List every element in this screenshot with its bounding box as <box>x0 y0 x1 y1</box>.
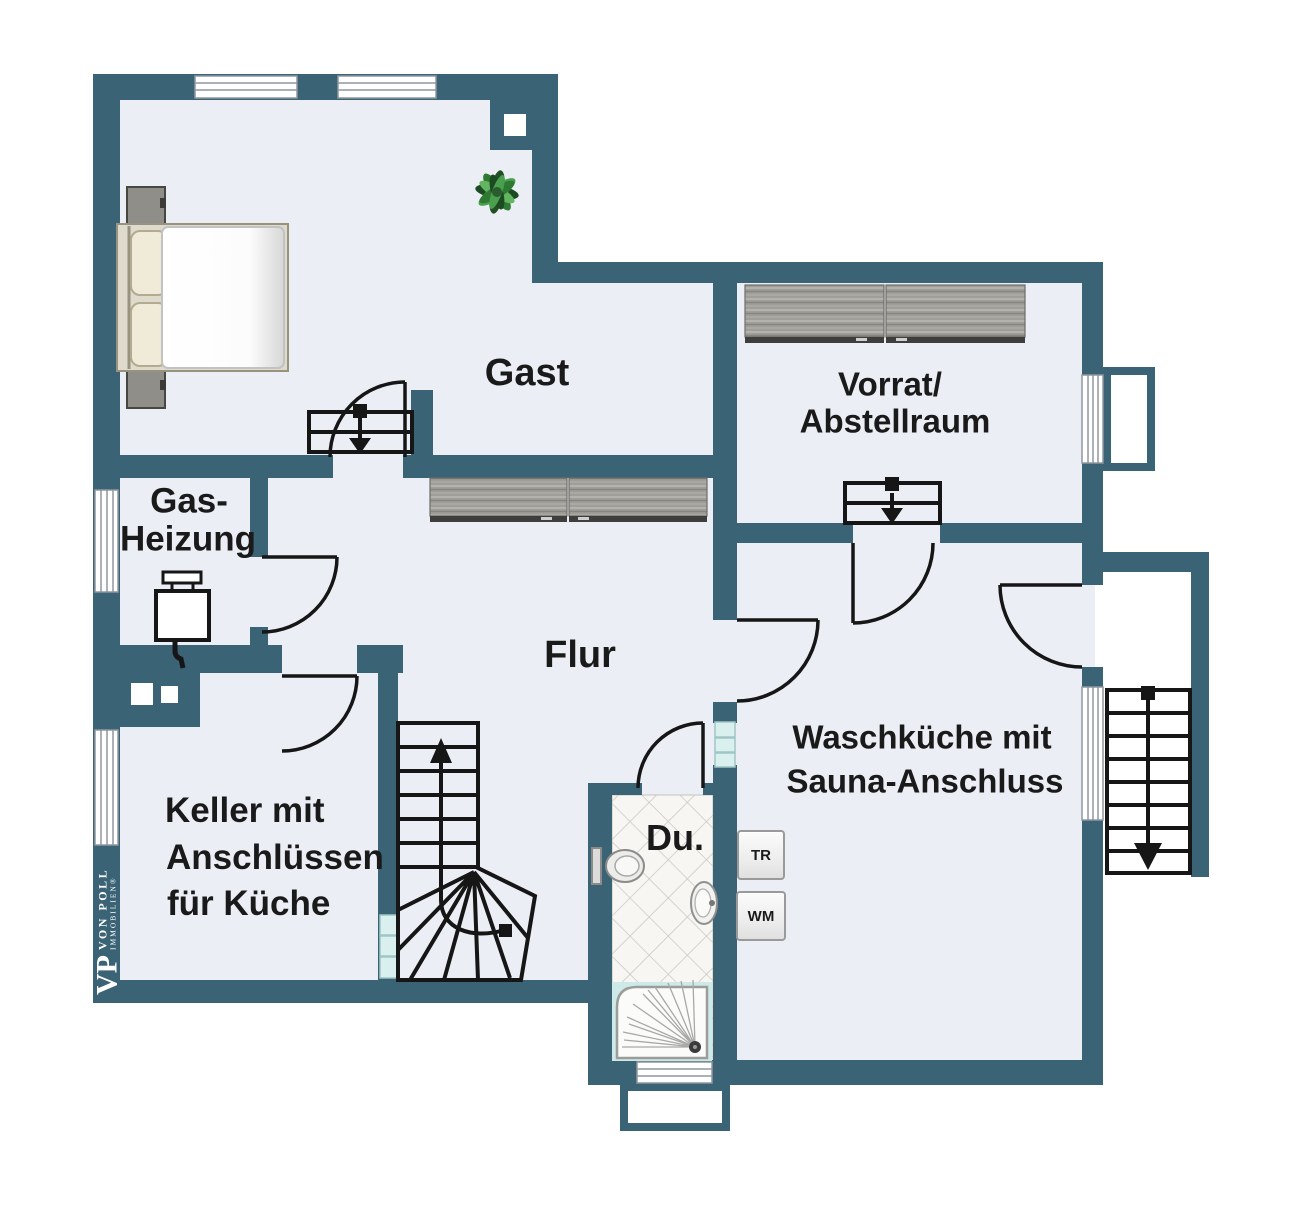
toilet-icon <box>592 848 644 884</box>
wall <box>1082 283 1103 375</box>
room-label-flur: Flur <box>544 636 616 674</box>
wall <box>403 455 713 478</box>
room-label-gast: Gast <box>485 354 569 392</box>
wall-notch <box>504 114 526 136</box>
room-label-vorrat-line2: Abstellraum <box>800 405 991 438</box>
brand-monogram: VP <box>92 955 122 995</box>
window-top-1 <box>195 76 297 98</box>
wall-ext-stair <box>1191 552 1209 877</box>
room-label-wasch-line2: Sauna-Anschluss <box>787 765 1064 798</box>
room-label-gas-line1: Gas- <box>150 484 228 519</box>
glass-block <box>715 722 735 737</box>
wall <box>713 765 737 1085</box>
room-label-vorrat-line1: Vorrat/ <box>838 368 942 401</box>
light-well-right <box>1107 371 1151 467</box>
wall <box>713 702 737 723</box>
nightstand-knob <box>160 198 166 208</box>
wall <box>1082 820 1103 1085</box>
chimney-flue <box>161 686 178 703</box>
sink-icon <box>691 882 717 924</box>
window-left-1 <box>95 490 118 592</box>
wall <box>713 523 853 543</box>
wall <box>940 523 1082 543</box>
dryer-box: TR <box>737 830 785 880</box>
wall <box>411 390 433 478</box>
window-right-vorrat <box>1082 375 1103 463</box>
wall <box>93 980 612 1003</box>
glass-block <box>715 753 735 767</box>
glass-block <box>380 957 398 978</box>
wall <box>588 785 612 1085</box>
room-label-keller-line2: Anschlüssen <box>166 840 384 875</box>
dryer-label: TR <box>751 847 771 864</box>
wall <box>93 645 282 673</box>
window-right-wasch <box>1082 687 1103 820</box>
washer-label: WM <box>748 908 775 925</box>
room-label-du: Du. <box>646 820 704 856</box>
room-label-keller-line3: für Küche <box>167 886 330 921</box>
floor-plan-canvas: Gast Vorrat/ Abstellraum Gas- Heizung Fl… <box>0 0 1304 1208</box>
window-top-2 <box>338 76 436 98</box>
chimney-flue <box>131 683 153 705</box>
bed-duvet <box>162 227 284 368</box>
window-bottom-shower <box>637 1062 712 1083</box>
room-label-wasch-line1: Waschküche mit <box>792 721 1051 754</box>
sideboard-flur <box>430 478 707 522</box>
wall <box>713 283 737 620</box>
wall <box>1082 667 1103 687</box>
window-left-2 <box>95 730 118 845</box>
wall <box>588 783 642 795</box>
room-label-gas-line2: Heizung <box>120 522 256 557</box>
wall <box>1082 463 1103 585</box>
brand-name: VON POLL <box>96 868 109 950</box>
glass-block <box>715 738 735 752</box>
brand-subtitle: IMMOBILIEN® <box>109 868 117 950</box>
light-well-bottom <box>624 1087 726 1127</box>
nightstand <box>127 187 165 226</box>
wall <box>532 262 1103 283</box>
wall <box>93 74 558 100</box>
shower-icon <box>612 980 712 1061</box>
room-label-keller-line1: Keller mit <box>165 793 325 828</box>
nightstand-knob <box>160 380 166 390</box>
stairs-exterior <box>1107 686 1190 873</box>
glass-block <box>380 936 398 956</box>
washer-box: WM <box>736 891 786 941</box>
glass-block <box>380 915 398 935</box>
brand-logo: VP VON POLL IMMOBILIEN® <box>93 843 120 995</box>
nightstand <box>127 369 165 408</box>
wall <box>93 455 333 478</box>
floor-plan-drawing <box>0 0 1304 1208</box>
